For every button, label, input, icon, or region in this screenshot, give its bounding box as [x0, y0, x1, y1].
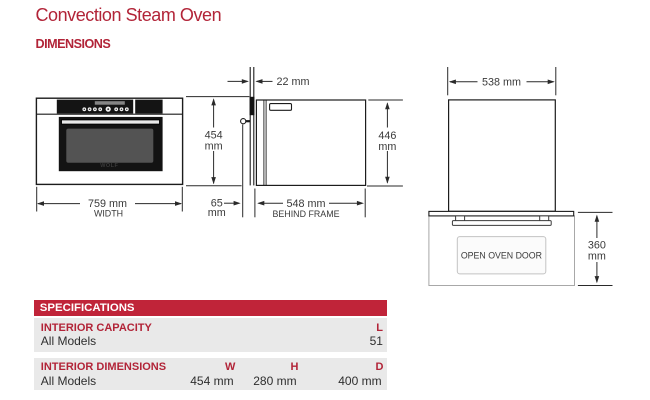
svg-text:mm: mm — [205, 141, 223, 153]
svg-text:mm: mm — [378, 141, 396, 153]
svg-text:WIDTH: WIDTH — [94, 208, 123, 218]
svg-text:OPEN OVEN DOOR: OPEN OVEN DOOR — [461, 250, 542, 260]
svg-text:538 mm: 538 mm — [482, 76, 521, 88]
svg-text:22 mm: 22 mm — [277, 76, 310, 88]
svg-text:mm: mm — [208, 207, 226, 219]
svg-text:WOLF: WOLF — [100, 163, 118, 169]
svg-text:BEHIND FRAME: BEHIND FRAME — [272, 209, 339, 219]
svg-text:mm: mm — [588, 250, 606, 262]
